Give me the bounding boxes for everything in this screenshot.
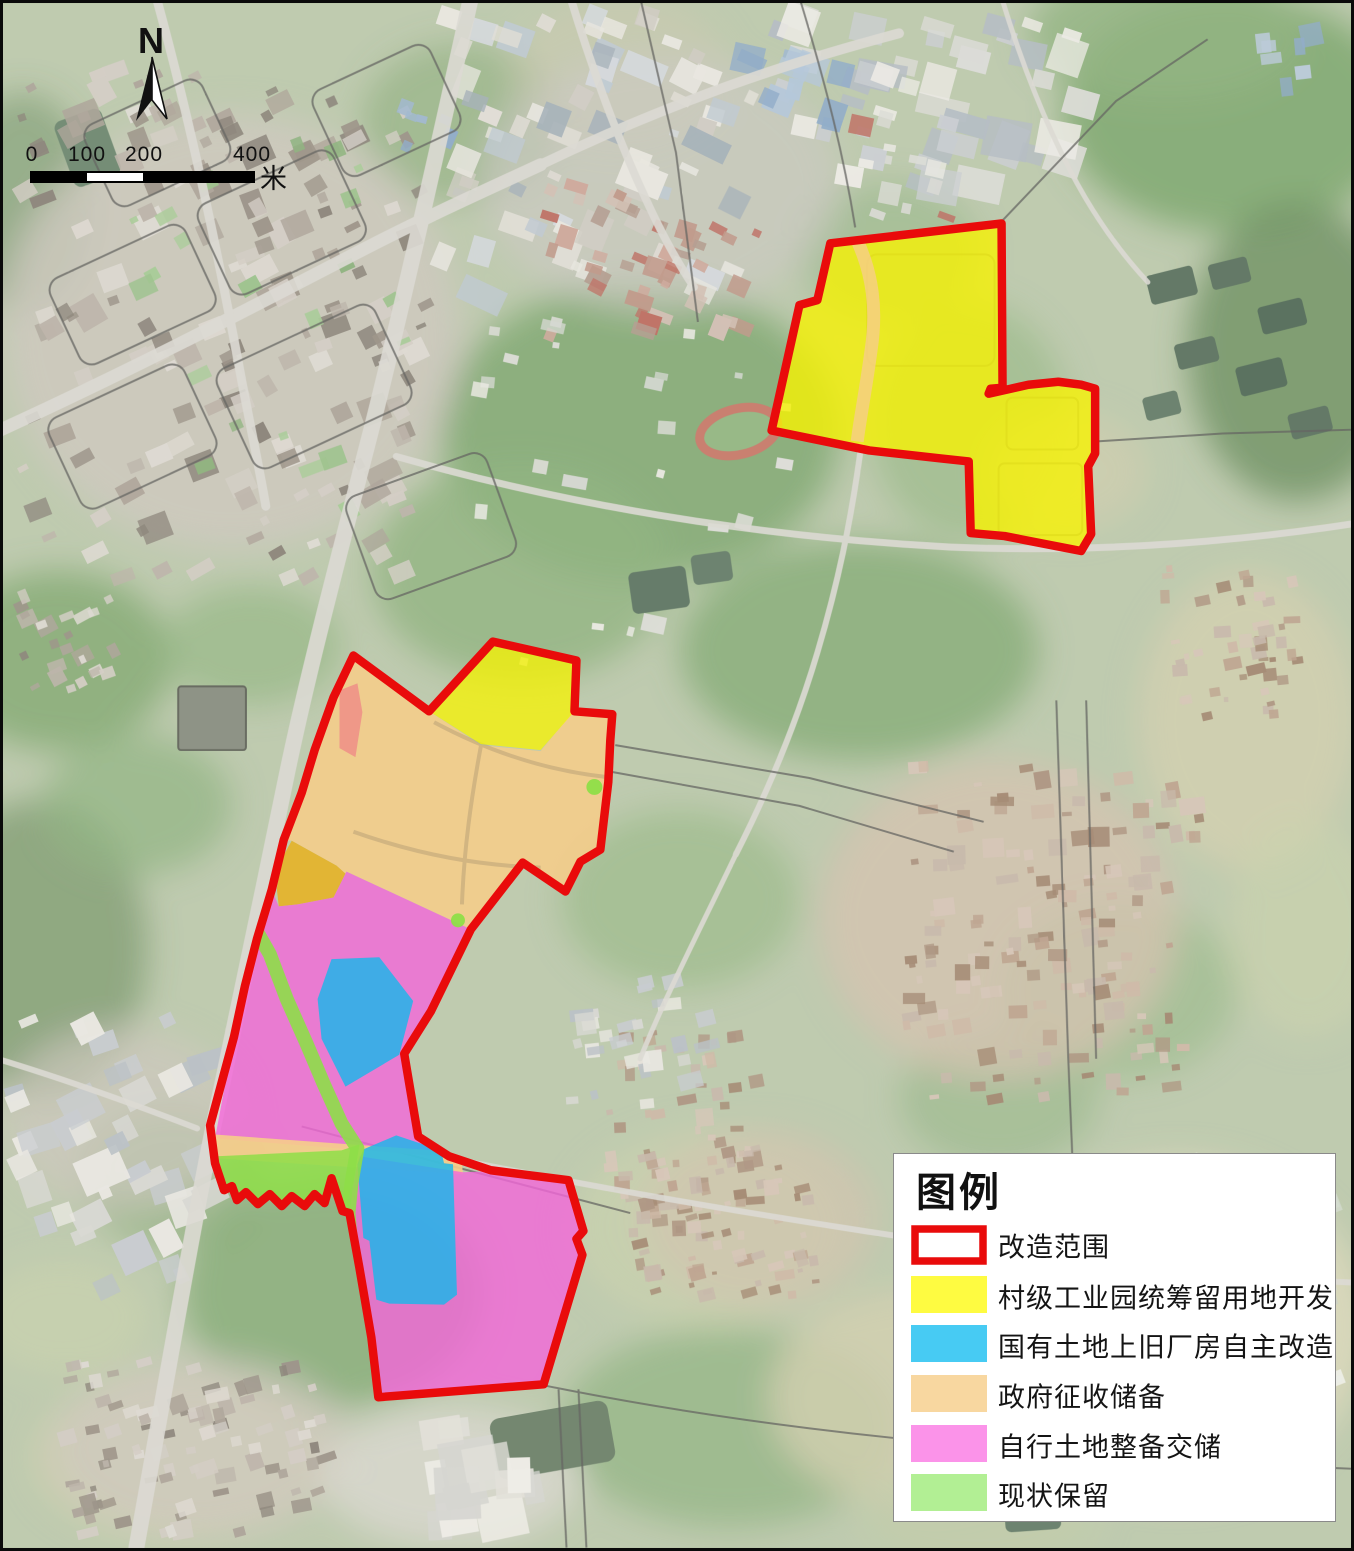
legend-label: 政府征收储备 (998, 1376, 1166, 1415)
legend-label: 改造范围 (998, 1226, 1110, 1265)
north-arrow-icon (135, 56, 173, 124)
planning-map-page: N 0 100 200 400 米 图例 改造范围 村级工业园统 (0, 0, 1354, 1551)
scale-bar-graphic (30, 171, 255, 183)
legend-label: 自行土地整备交储 (998, 1426, 1222, 1465)
legend-title: 图例 (916, 1160, 1002, 1218)
legend-swatch-yellow (911, 1276, 987, 1318)
legend-label: 国有土地上旧厂房自主改造 (998, 1326, 1334, 1365)
legend-item-self-consolidation: 自行土地整备交储 (894, 1425, 1335, 1465)
legend-item-state-owned-factory: 国有土地上旧厂房自主改造 (894, 1325, 1335, 1365)
legend-swatch-cyan (911, 1325, 987, 1367)
legend-swatch-pink (911, 1425, 987, 1467)
legend-swatch-orange (911, 1375, 987, 1417)
north-arrow: N (119, 23, 189, 127)
legend-swatch-green (911, 1474, 987, 1516)
scale-tick-100: 100 (68, 143, 106, 167)
scale-tick-0: 0 (26, 143, 39, 167)
legend-label: 现状保留 (998, 1475, 1110, 1514)
legend: 图例 改造范围 村级工业园统筹留用地开发 国有土地上旧厂房自主改造 (893, 1153, 1336, 1522)
green-dot (451, 913, 465, 927)
legend-item-village-industrial: 村级工业园统筹留用地开发 (894, 1276, 1335, 1316)
green-dot (586, 779, 602, 795)
legend-item-renovation-extent: 改造范围 (894, 1225, 1335, 1265)
north-label: N (119, 23, 183, 59)
legend-item-government-expropriation: 政府征收储备 (894, 1375, 1335, 1415)
scale-bar: 0 100 200 400 米 (3, 141, 313, 203)
legend-label: 村级工业园统筹留用地开发 (998, 1277, 1334, 1316)
scale-tick-200: 200 (125, 143, 163, 167)
legend-swatch-outline (911, 1225, 987, 1270)
scale-unit: 米 (260, 157, 287, 196)
legend-item-status-quo: 现状保留 (894, 1474, 1335, 1514)
